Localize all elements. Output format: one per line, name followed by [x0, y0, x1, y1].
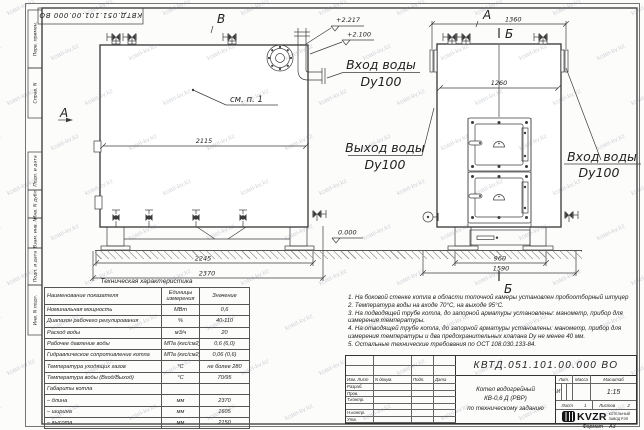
table-row: – ширинамм1605 — [45, 406, 250, 417]
section-marker-b-top: Б — [505, 27, 513, 41]
change-col-header: Дата — [434, 376, 456, 384]
margin-label: Взам. инв. N — [33, 218, 39, 248]
scale-header: Масштаб — [591, 375, 636, 383]
water-inlet-label: Вход воды Dy100 — [327, 57, 420, 89]
table-row: Гидравлическое сопротивление котлаМПа (к… — [45, 350, 250, 361]
mass-value — [573, 384, 591, 400]
col-header-name: Наименование показателя — [45, 288, 162, 305]
table-row: – длинамм2370 — [45, 395, 250, 406]
sheets-value: 2 — [627, 403, 629, 408]
ground-hatch — [95, 250, 582, 259]
svg-text:1360: 1360 — [505, 16, 522, 24]
svg-text:Dy100: Dy100 — [365, 157, 406, 172]
elevation-inlet: +2.100 — [347, 31, 371, 39]
kvzr-logo-icon — [562, 411, 575, 422]
margin-label: Инв. N подл. — [33, 295, 39, 325]
svg-text:Dy100: Dy100 — [361, 74, 402, 89]
table-row: Температура уходящих газов°Сне более 280 — [45, 361, 250, 372]
change-grid: Изм. Лист N докум. Подп. Дата Разраб. Пр… — [346, 356, 456, 423]
svg-text:Вход воды: Вход воды — [346, 57, 416, 72]
table-row: Температура воды (Вход/Выход)°С70/95 — [45, 372, 250, 383]
note-item: 2. Температура воды на входе 70°С, на вы… — [348, 302, 639, 310]
water-inlet-label-right: Вход воды Dy100 — [564, 68, 641, 180]
table-header-row: Наименование показателя Единицы измерени… — [45, 288, 250, 305]
top-stamp: КВТД.051.101.00.000 ВО — [38, 8, 143, 24]
margin-label: Инв. N дубл. — [33, 189, 39, 219]
table-row: Расход водым3/ч20 — [45, 327, 250, 338]
note-item: 5. Остальные технические требования по О… — [348, 341, 639, 349]
kvzr-logo-text: KVZR — [577, 411, 607, 423]
drawing-title: Котел водогрейный КВ-0,6 Д (РВР) по техн… — [456, 375, 556, 423]
margin-label: Справ. N — [33, 82, 39, 104]
change-col-header: Подп. — [412, 376, 434, 384]
elevation-ground: 0.000 — [338, 229, 357, 237]
front-base — [448, 227, 553, 250]
svg-text:2370: 2370 — [199, 270, 216, 278]
svg-text:Dy100: Dy100 — [579, 165, 620, 180]
drawing-sheet: Перв. примен. Справ. N Подп. и дата Инв.… — [0, 0, 644, 430]
elevation-marks: +2.217 +2.100 0.000 — [306, 16, 374, 243]
change-col-header: N докум. — [374, 376, 412, 384]
scale-value: 1:15 — [591, 384, 636, 400]
tech-characteristics: Техническая характеристика Наименование … — [44, 278, 249, 429]
svg-text:2115: 2115 — [196, 137, 213, 145]
support-frame — [101, 227, 314, 250]
view-marker-v: В — [217, 12, 225, 26]
stamp-doc-number: КВТД.051.101.00.000 ВО — [39, 11, 142, 19]
kvzr-logo-caption: КОТЕЛЬНЫЙ ЗАВОД РЭП — [609, 412, 630, 421]
svg-text:Вход воды: Вход воды — [567, 149, 637, 164]
tech-table: Наименование показателя Единицы измерени… — [44, 287, 250, 429]
margin-label: Перв. примен. — [33, 22, 39, 57]
table-row: – высотамм2150 — [45, 417, 250, 428]
margin-label: Подп. и дата — [33, 251, 39, 282]
lit-header: Лит. — [556, 375, 573, 383]
company-logo: KVZR КОТЕЛЬНЫЙ ЗАВОД РЭП — [556, 410, 636, 423]
sheets-label: Листов — [599, 403, 615, 408]
margin-label: Подп. и дата — [33, 155, 39, 186]
svg-text:1260: 1260 — [491, 79, 508, 87]
note-item: 4. На отводящей трубе котла, до запорной… — [348, 325, 639, 341]
svg-text:1590: 1590 — [493, 265, 510, 273]
section-marker-a: А — [59, 106, 68, 120]
sign-row-label: Утв. — [346, 417, 374, 424]
col-header-units: Единицы измерения — [162, 288, 200, 305]
format-label: Формат А3 — [553, 424, 644, 430]
technical-notes: 1. На боковой стенке котла в области топ… — [348, 294, 639, 349]
table-row: Диапазон рабочего регулирования%40-110 — [45, 316, 250, 327]
change-col-header: Изм. Лист — [346, 376, 374, 384]
table-row: Габариты котла — [45, 384, 250, 395]
boiler-side-view: 2115 2245 2370 В А — [58, 12, 434, 281]
sheet-label: Лист — [562, 403, 573, 408]
title-block-right: Лит. Масса Масштаб И 1:15 Лист1 Листов2 … — [556, 375, 636, 423]
svg-text:см. п. 1: см. п. 1 — [230, 95, 263, 105]
table-row: Рабочее давление водыМПа (кгс/см2)0,6 (6… — [45, 338, 250, 349]
svg-text:Выход воды: Выход воды — [345, 140, 425, 155]
title-block: Изм. Лист N докум. Подп. Дата Разраб. Пр… — [345, 355, 637, 424]
note-item: 3. На подводящей трубе котла, до запорно… — [348, 310, 639, 326]
mass-header: Масса — [573, 375, 591, 383]
table-row: Номинальная мощностьМВт0,6 — [45, 305, 250, 316]
col-header-value: Значение — [200, 288, 250, 305]
water-outlet-label: Выход воды Dy100 — [345, 108, 434, 172]
margin-strip: Перв. примен. Справ. N Подп. и дата Инв.… — [28, 10, 42, 335]
elevation-top: +2.217 — [336, 16, 361, 24]
note-item: 1. На боковой стенке котла в области топ… — [348, 294, 639, 302]
view-marker-a: А — [482, 8, 491, 22]
tech-table-title: Техническая характеристика — [44, 278, 249, 285]
sheet-value: 1 — [584, 403, 586, 408]
document-number: КВТД.051.101.00.000 ВО — [456, 356, 636, 376]
